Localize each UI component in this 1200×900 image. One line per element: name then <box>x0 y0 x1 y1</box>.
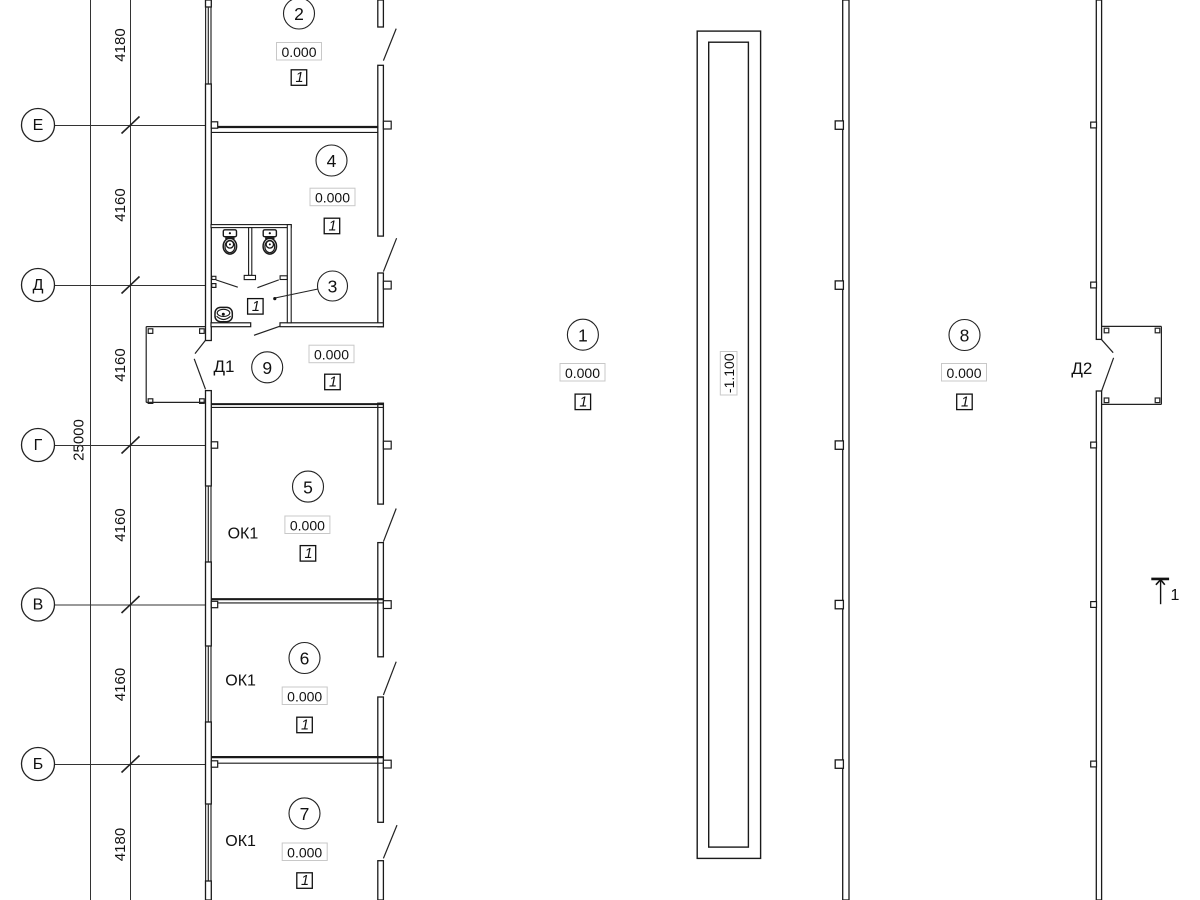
svg-text:Е: Е <box>33 117 44 134</box>
svg-text:4180: 4180 <box>112 828 129 861</box>
svg-text:1: 1 <box>328 219 336 235</box>
svg-text:0.000: 0.000 <box>314 347 349 363</box>
svg-text:25000: 25000 <box>71 419 88 461</box>
svg-text:0.000: 0.000 <box>281 44 316 60</box>
svg-text:ОК1: ОК1 <box>225 673 256 690</box>
svg-text:1: 1 <box>304 546 312 562</box>
svg-text:4180: 4180 <box>112 28 129 61</box>
svg-text:4: 4 <box>327 151 337 171</box>
svg-text:4160: 4160 <box>112 188 129 221</box>
svg-text:0.000: 0.000 <box>290 517 325 533</box>
svg-text:1: 1 <box>301 718 309 734</box>
svg-text:4160: 4160 <box>112 668 129 701</box>
svg-text:0.000: 0.000 <box>565 365 600 381</box>
svg-text:1: 1 <box>301 873 309 889</box>
svg-text:5: 5 <box>303 477 313 497</box>
svg-text:1: 1 <box>578 325 588 345</box>
svg-text:0.000: 0.000 <box>287 688 322 704</box>
svg-text:ОК1: ОК1 <box>228 526 259 543</box>
svg-text:6: 6 <box>300 649 310 669</box>
svg-text:Д: Д <box>33 277 44 294</box>
svg-text:0.000: 0.000 <box>287 844 322 860</box>
svg-text:1: 1 <box>252 299 260 315</box>
svg-text:0.000: 0.000 <box>946 365 981 381</box>
svg-text:1: 1 <box>579 395 587 411</box>
svg-text:4160: 4160 <box>112 348 129 381</box>
svg-text:ОК1: ОК1 <box>225 833 256 850</box>
svg-text:9: 9 <box>262 358 272 378</box>
svg-text:1: 1 <box>295 70 303 86</box>
svg-text:1: 1 <box>961 395 969 411</box>
svg-text:Б: Б <box>33 756 44 773</box>
svg-text:2: 2 <box>294 4 304 24</box>
svg-text:Д1: Д1 <box>214 357 235 376</box>
svg-text:Г: Г <box>34 437 43 454</box>
svg-text:-1.100: -1.100 <box>721 353 737 393</box>
svg-text:1: 1 <box>329 375 337 391</box>
svg-text:8: 8 <box>960 326 970 346</box>
svg-text:В: В <box>33 597 44 614</box>
svg-text:Д2: Д2 <box>1071 359 1092 378</box>
svg-text:3: 3 <box>328 277 338 297</box>
svg-text:1: 1 <box>1171 587 1180 604</box>
svg-text:4160: 4160 <box>112 508 129 541</box>
svg-text:7: 7 <box>300 804 310 824</box>
svg-text:0.000: 0.000 <box>315 190 350 206</box>
